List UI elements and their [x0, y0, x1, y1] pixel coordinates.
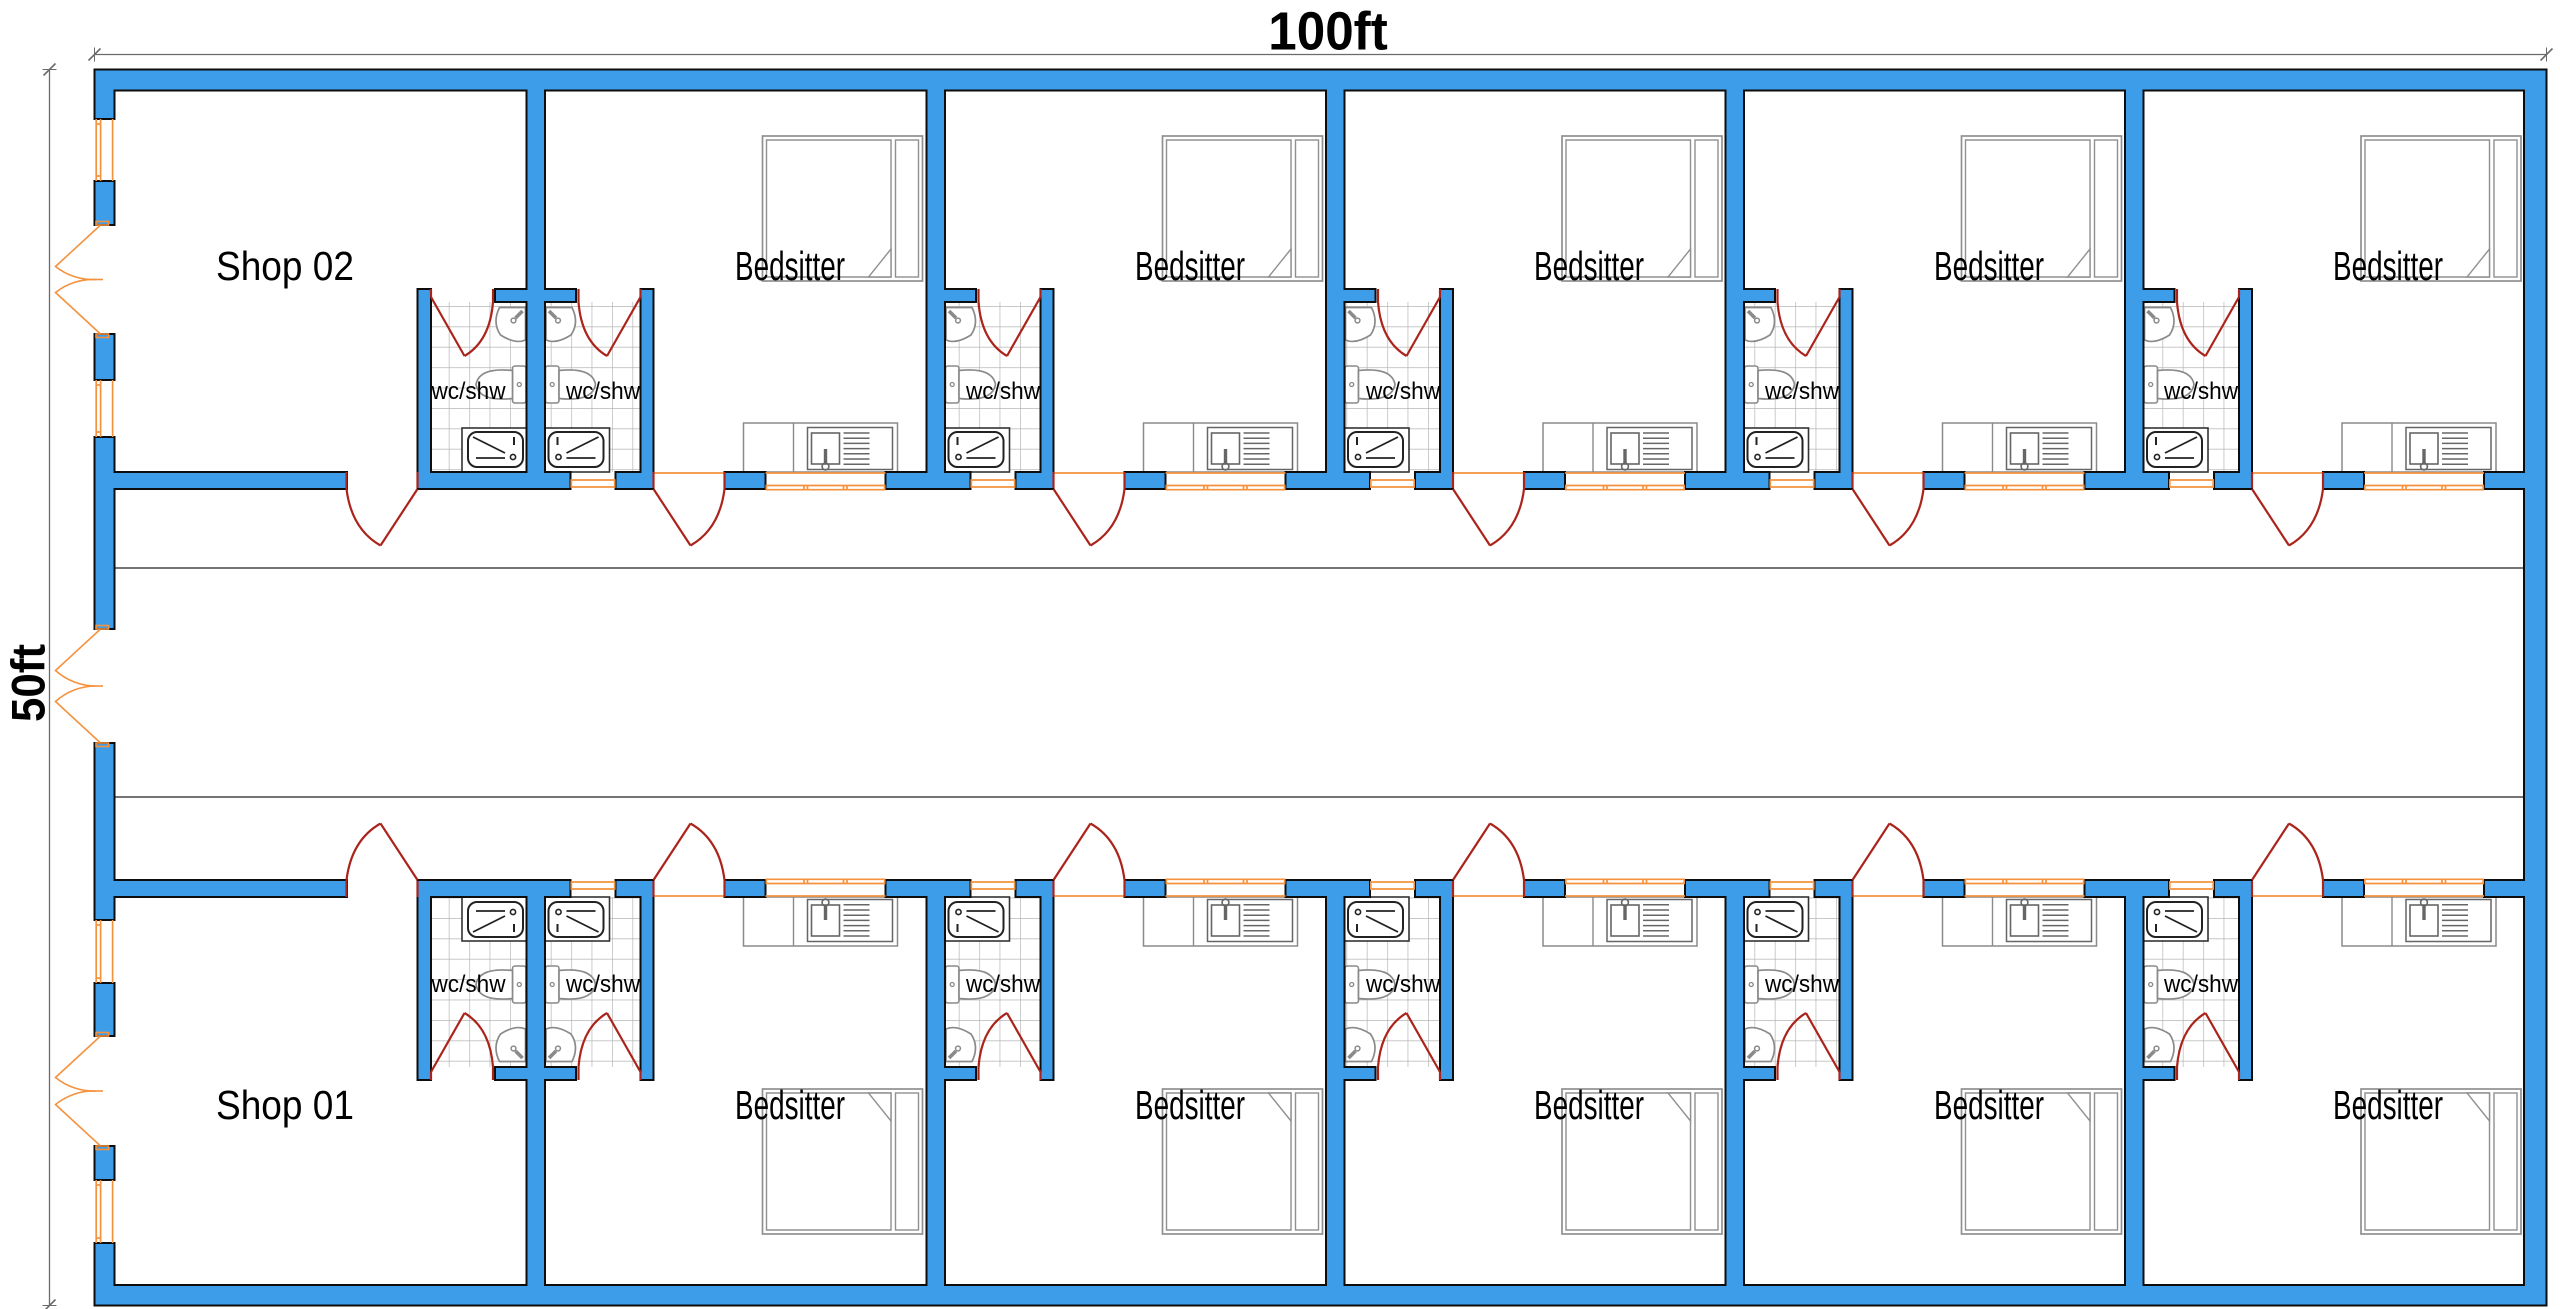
- svg-text:Shop 01: Shop 01: [216, 1082, 354, 1128]
- svg-text:Bedsitter: Bedsitter: [1135, 243, 1245, 289]
- svg-text:100ft: 100ft: [1268, 2, 1388, 62]
- svg-text:wc/shw: wc/shw: [965, 971, 1041, 998]
- svg-text:Bedsitter: Bedsitter: [1534, 243, 1644, 289]
- svg-text:50ft: 50ft: [3, 644, 56, 722]
- svg-text:wc/shw: wc/shw: [1365, 971, 1441, 998]
- svg-text:wc/shw: wc/shw: [1764, 971, 1840, 998]
- svg-text:wc/shw: wc/shw: [965, 378, 1041, 405]
- svg-text:Bedsitter: Bedsitter: [735, 243, 845, 289]
- svg-text:wc/shw: wc/shw: [565, 971, 641, 998]
- svg-text:Bedsitter: Bedsitter: [1135, 1082, 1245, 1128]
- svg-text:Bedsitter: Bedsitter: [1534, 1082, 1644, 1128]
- svg-text:wc/shw: wc/shw: [2163, 971, 2239, 998]
- svg-text:Bedsitter: Bedsitter: [1934, 1082, 2044, 1128]
- svg-text:wc/shw: wc/shw: [431, 971, 507, 998]
- svg-text:Bedsitter: Bedsitter: [2333, 243, 2443, 289]
- svg-text:Bedsitter: Bedsitter: [735, 1082, 845, 1128]
- svg-text:wc/shw: wc/shw: [2163, 378, 2239, 405]
- svg-text:Bedsitter: Bedsitter: [2333, 1082, 2443, 1128]
- svg-text:Bedsitter: Bedsitter: [1934, 243, 2044, 289]
- svg-text:wc/shw: wc/shw: [1764, 378, 1840, 405]
- svg-text:Shop 02: Shop 02: [216, 243, 354, 289]
- svg-text:wc/shw: wc/shw: [431, 378, 507, 405]
- svg-text:wc/shw: wc/shw: [1365, 378, 1441, 405]
- svg-text:wc/shw: wc/shw: [565, 378, 641, 405]
